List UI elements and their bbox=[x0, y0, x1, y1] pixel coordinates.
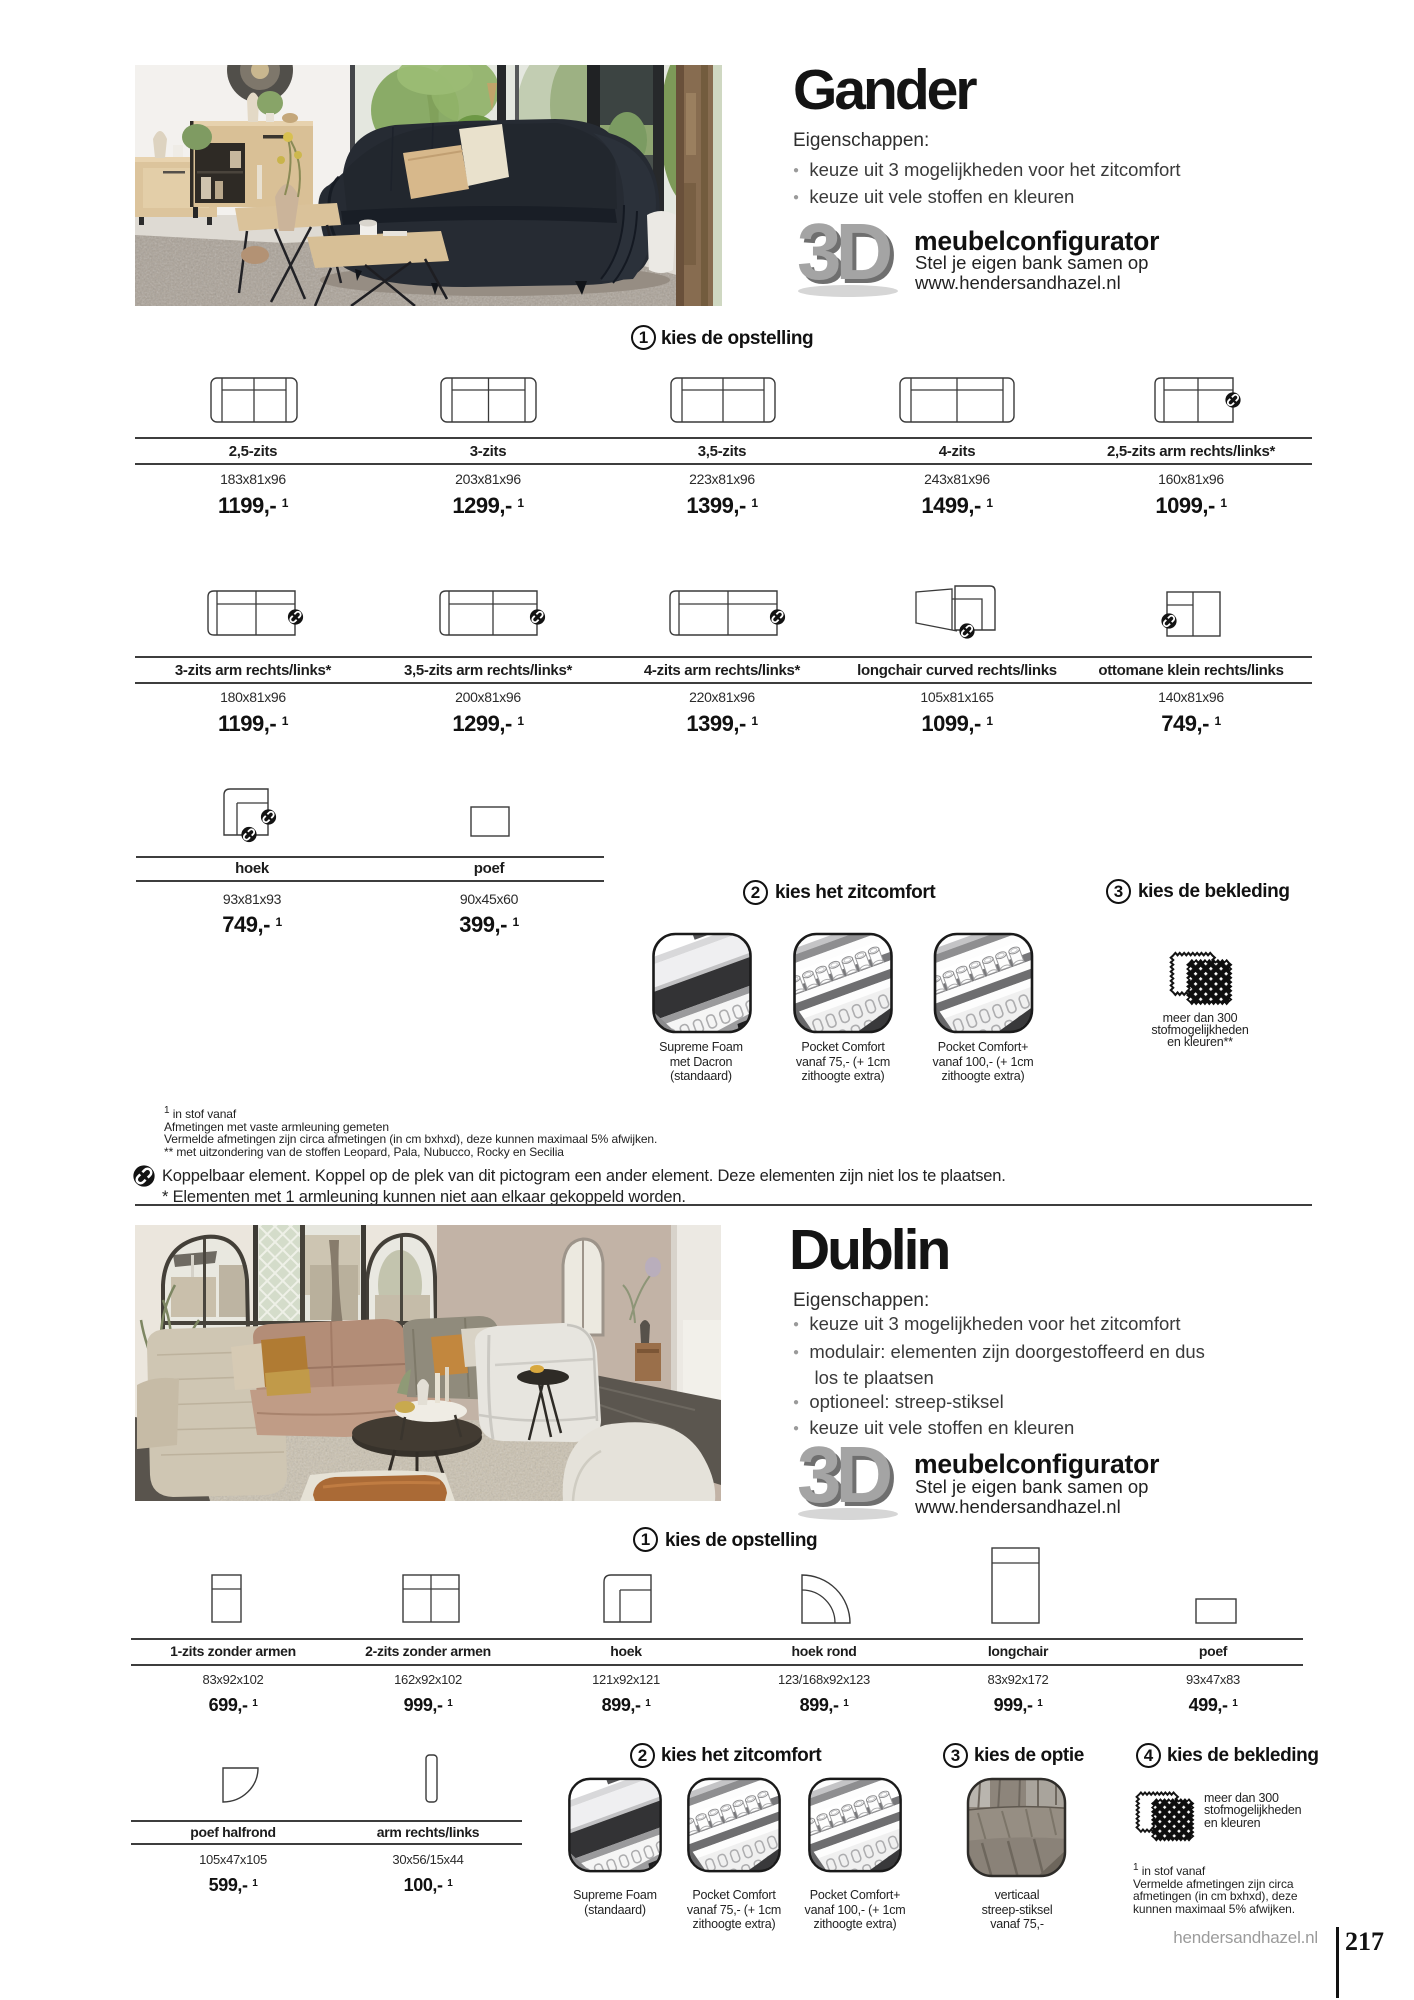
svg-text:3D: 3D bbox=[797, 217, 890, 296]
svg-text:3D: 3D bbox=[797, 1440, 890, 1519]
